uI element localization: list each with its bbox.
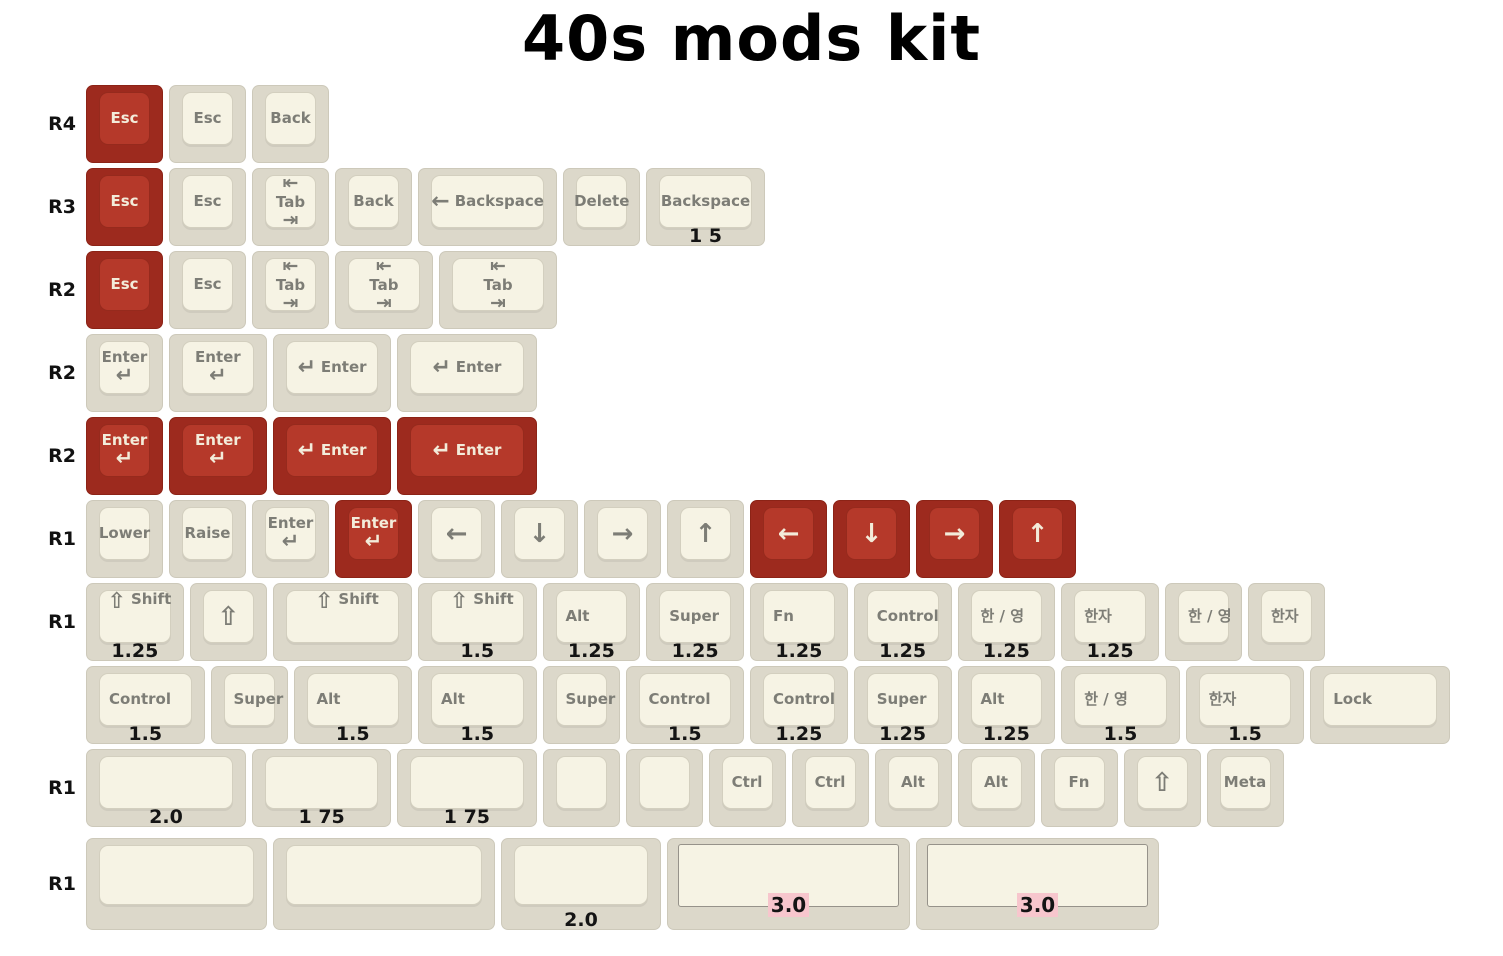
keycap-han-yeong: 한 / 영1.5 — [1061, 666, 1180, 744]
keycap-enter-red: Enter↵ — [335, 500, 412, 578]
keycap-top: Enter↵ — [348, 507, 399, 560]
return-arrow-icon: ↵ — [209, 448, 227, 469]
up-arrow-icon: ↑ — [695, 521, 717, 547]
keycap-top — [99, 845, 254, 905]
keycap-top: Lock — [1323, 673, 1436, 726]
down-arrow-icon: ↓ — [861, 521, 883, 547]
keycap-enter-red: ↵Enter — [397, 417, 536, 495]
keycap-alt: Alt — [875, 749, 952, 827]
keycap-super: Super — [543, 666, 620, 744]
keycap-top: ⇤Tab⇥ — [452, 258, 545, 311]
size-label: 2.0 — [502, 911, 660, 930]
keycap-super: Super1.25 — [854, 666, 952, 744]
keycap-blank: 1 75 — [252, 749, 391, 827]
keycap-top: ↵Enter — [410, 424, 523, 477]
keycap-top: Back — [348, 175, 399, 228]
keycap-top: 한 / 영 — [1178, 590, 1229, 643]
keycap-hanja: 한자 — [1248, 583, 1325, 661]
row-label: R1 — [28, 749, 76, 827]
shift-arrow-icon: ⇧ — [1151, 770, 1173, 796]
keycap-super: Super1.25 — [646, 583, 744, 661]
tab-backward-icon: ⇤ — [283, 174, 299, 192]
keycap-hanja: 한자1.5 — [1186, 666, 1305, 744]
keycap-control: Control1.5 — [626, 666, 745, 744]
keycap-top: ←Backspace — [431, 175, 544, 228]
size-label: 3.0 — [668, 895, 909, 915]
keycap-arrow-up-red: ↑ — [999, 500, 1076, 578]
size-label: 1.5 — [627, 725, 744, 744]
down-arrow-icon: ↓ — [529, 521, 551, 547]
keycap-top: Super — [224, 673, 275, 726]
right-arrow-icon: → — [612, 521, 634, 547]
keycap-fn: Fn1.25 — [750, 583, 848, 661]
keycap-top: Alt — [971, 756, 1022, 809]
keycap-blank: 2.0 — [501, 838, 661, 930]
keycap-alt: Alt1.5 — [418, 666, 537, 744]
keycap-super: Super — [211, 666, 288, 744]
keycap-top: Backspace — [659, 175, 752, 228]
keycap-top: ↵Enter — [410, 341, 523, 394]
keycap-han-yeong: 한 / 영 — [1165, 583, 1242, 661]
size-label: 3.0 — [917, 895, 1158, 915]
keycap-top: Ctrl — [722, 756, 773, 809]
return-arrow-icon: ↵ — [297, 357, 315, 379]
keycap-esc-red: Esc — [86, 251, 163, 329]
size-label: 1.5 — [295, 725, 412, 744]
tab-backward-icon: ⇤ — [490, 257, 506, 275]
keycap-top: Esc — [182, 175, 233, 228]
keycap-top: Ctrl — [805, 756, 856, 809]
size-label: 1.25 — [751, 725, 847, 744]
keycap-top — [410, 756, 523, 809]
keycap-top: → — [597, 507, 648, 560]
keycap-top: ⇧Shift — [99, 590, 171, 643]
tab-forward-icon: ⇥ — [283, 294, 299, 312]
shift-arrow-icon: ⇧ — [217, 604, 239, 630]
keycap-shift-icon: ⇧ — [190, 583, 267, 661]
size-label: 1.25 — [751, 642, 847, 661]
keycap-top: ⇤Tab⇥ — [265, 175, 316, 228]
row-label: R3 — [28, 168, 76, 246]
keycap-top: ⇧Shift — [286, 590, 399, 643]
row-label: R2 — [28, 334, 76, 412]
up-arrow-icon: ↑ — [1027, 521, 1049, 547]
keycap-shift: ⇧Shift — [273, 583, 412, 661]
keycap-top: Esc — [182, 258, 233, 311]
keycap-kit-diagram: R4EscEscBackR3EscEsc⇤Tab⇥Back←BackspaceD… — [0, 0, 1503, 956]
keycap-alt: Alt1.25 — [543, 583, 641, 661]
keycap-spacebar: 3.0 — [916, 838, 1159, 930]
right-arrow-icon: → — [944, 521, 966, 547]
keycap-top: Alt — [888, 756, 939, 809]
shift-arrow-icon: ⇧ — [315, 591, 333, 613]
keycap-enter: Enter↵ — [86, 334, 163, 412]
row-label: R4 — [28, 85, 76, 163]
keycap-top: ⇧ — [1137, 756, 1188, 809]
tab-backward-icon: ⇤ — [283, 257, 299, 275]
keycap-top: Alt — [971, 673, 1043, 726]
keycap-backspace: Backspace1 5 — [646, 168, 765, 246]
keycap-top: Alt — [431, 673, 524, 726]
size-label: 1.25 — [959, 642, 1055, 661]
keycap-tab: ⇤Tab⇥ — [252, 168, 329, 246]
keycap-blank — [626, 749, 703, 827]
keycap-hanja: 한자1.25 — [1061, 583, 1159, 661]
keycap-top: ↓ — [514, 507, 565, 560]
row-label: R2 — [28, 251, 76, 329]
keycap-blank — [86, 838, 267, 930]
keycap-top: Esc — [99, 92, 150, 145]
size-label: 1.25 — [855, 642, 951, 661]
keycap-top: Enter↵ — [265, 507, 316, 560]
row-label: R2 — [28, 417, 76, 495]
keycap-top: Fn — [763, 590, 835, 643]
keycap-top: Esc — [182, 92, 233, 145]
size-label: 1.25 — [544, 642, 640, 661]
keycap-top — [99, 756, 233, 809]
keycap-top: Lower — [99, 507, 150, 560]
size-label: 1.25 — [959, 725, 1055, 744]
size-label: 1.25 — [87, 642, 183, 661]
keycap-enter-red: Enter↵ — [86, 417, 163, 495]
keycap-fn: Fn — [1041, 749, 1118, 827]
keycap-top: ⇤Tab⇥ — [348, 258, 420, 311]
keycap-top: 한자 — [1074, 590, 1146, 643]
keycap-enter: Enter↵ — [252, 500, 329, 578]
keycap-control: Control1.5 — [86, 666, 205, 744]
row-label: R1 — [28, 838, 76, 930]
tab-forward-icon: ⇥ — [376, 294, 392, 312]
keycap-top: ← — [431, 507, 482, 560]
size-label: 1.5 — [1062, 725, 1179, 744]
keycap-top: Esc — [99, 258, 150, 311]
size-label: 1.5 — [419, 725, 536, 744]
keycap-arrow-up: ↑ — [667, 500, 744, 578]
size-label: 1 75 — [253, 808, 390, 827]
keycap-top: ↑ — [1012, 507, 1063, 560]
keycap-delete: Delete — [563, 168, 640, 246]
return-arrow-icon: ↵ — [432, 440, 450, 462]
keycap-alt: Alt1.5 — [294, 666, 413, 744]
keycap-alt: Alt — [958, 749, 1035, 827]
left-arrow-icon: ← — [778, 521, 800, 547]
keycap-top: Esc — [99, 175, 150, 228]
keycap-tab: ⇤Tab⇥ — [439, 251, 558, 329]
keycap-top: Alt — [307, 673, 400, 726]
keycap-lock: Lock — [1310, 666, 1449, 744]
keycap-top: Super — [867, 673, 939, 726]
keycap-esc-red: Esc — [86, 85, 163, 163]
return-arrow-icon: ↵ — [116, 448, 134, 469]
keycap-raise: Raise — [169, 500, 246, 578]
keycap-blank: 2.0 — [86, 749, 246, 827]
keycap-top: Fn — [1054, 756, 1105, 809]
keycap-shift-icon: ⇧ — [1124, 749, 1201, 827]
tab-forward-icon: ⇥ — [490, 294, 506, 312]
keycap-top: Enter↵ — [182, 424, 254, 477]
keycap-top: ⇧Shift — [431, 590, 524, 643]
keycap-enter-red: ↵Enter — [273, 417, 392, 495]
keycap-top — [514, 845, 648, 905]
keycap-esc: Esc — [169, 85, 246, 163]
return-arrow-icon: ↵ — [365, 531, 383, 552]
keycap-top — [286, 845, 482, 905]
keycap-top: ↓ — [846, 507, 897, 560]
tab-forward-icon: ⇥ — [283, 211, 299, 229]
keycap-top: 한자 — [1261, 590, 1312, 643]
keycap-arrow-left: ← — [418, 500, 495, 578]
keycap-top: Enter↵ — [99, 341, 150, 394]
keycap-top: Control — [867, 590, 939, 643]
keycap-top: Back — [265, 92, 316, 145]
keycap-alt: Alt1.25 — [958, 666, 1056, 744]
keycap-top: ← — [763, 507, 814, 560]
keycap-top: ↵Enter — [286, 341, 379, 394]
keycap-shift: ⇧Shift1.25 — [86, 583, 184, 661]
keycap-blank — [273, 838, 495, 930]
keycap-tab: ⇤Tab⇥ — [252, 251, 329, 329]
size-label: 2.0 — [87, 808, 245, 827]
keycap-ctrl: Ctrl — [792, 749, 869, 827]
size-label: 1 5 — [647, 227, 764, 246]
keycap-top: ↑ — [680, 507, 731, 560]
keycap-arrow-right-red: → — [916, 500, 993, 578]
return-arrow-icon: ↵ — [432, 357, 450, 379]
keycap-ctrl: Ctrl — [709, 749, 786, 827]
size-label: 1.25 — [647, 642, 743, 661]
keycap-top: → — [929, 507, 980, 560]
backspace-arrow-icon: ← — [431, 191, 449, 213]
keycap-top: Delete — [576, 175, 627, 228]
keycap-spacebar: 3.0 — [667, 838, 910, 930]
row-label: R1 — [28, 500, 76, 578]
keycap-backspace-arrow: ←Backspace — [418, 168, 557, 246]
keycap-esc: Esc — [169, 251, 246, 329]
size-label: 1 75 — [398, 808, 535, 827]
shift-arrow-icon: ⇧ — [108, 591, 126, 613]
keycap-top: Control — [99, 673, 192, 726]
keycap-blank: 1 75 — [397, 749, 536, 827]
keycap-control: Control1.25 — [750, 666, 848, 744]
keycap-enter: ↵Enter — [397, 334, 536, 412]
keycap-esc-red: Esc — [86, 168, 163, 246]
keycap-top: 한자 — [1199, 673, 1292, 726]
return-arrow-icon: ↵ — [116, 365, 134, 386]
keycap-enter: Enter↵ — [169, 334, 267, 412]
keycap-top: ⇧ — [203, 590, 254, 643]
size-label: 1.5 — [1187, 725, 1304, 744]
keycap-top: 한 / 영 — [971, 590, 1043, 643]
keycap-top: ↵Enter — [286, 424, 379, 477]
keycap-top: Super — [659, 590, 731, 643]
size-label: 1.5 — [419, 642, 536, 661]
keycap-esc: Esc — [169, 168, 246, 246]
keycap-top: Super — [556, 673, 607, 726]
keycap-top: Enter↵ — [99, 424, 150, 477]
keycap-top: Raise — [182, 507, 233, 560]
keycap-tab: ⇤Tab⇥ — [335, 251, 433, 329]
keycap-enter: ↵Enter — [273, 334, 392, 412]
keycap-top: Control — [639, 673, 732, 726]
shift-arrow-icon: ⇧ — [450, 591, 468, 613]
keycap-shift: ⇧Shift1.5 — [418, 583, 537, 661]
row-label: R1 — [28, 583, 76, 661]
keycap-arrow-down: ↓ — [501, 500, 578, 578]
keycap-top: ⇤Tab⇥ — [265, 258, 316, 311]
size-label: 1.25 — [855, 725, 951, 744]
keycap-back: Back — [335, 168, 412, 246]
tab-backward-icon: ⇤ — [376, 257, 392, 275]
keycap-lower: Lower — [86, 500, 163, 578]
size-label: 1.5 — [87, 725, 204, 744]
keycap-top: Alt — [556, 590, 628, 643]
keycap-meta: Meta — [1207, 749, 1284, 827]
keycap-arrow-right: → — [584, 500, 661, 578]
keycap-top: Control — [763, 673, 835, 726]
keycap-top — [639, 756, 690, 809]
left-arrow-icon: ← — [446, 521, 468, 547]
keycap-top: Meta — [1220, 756, 1271, 809]
keycap-control: Control1.25 — [854, 583, 952, 661]
keycap-han-yeong: 한 / 영1.25 — [958, 583, 1056, 661]
return-arrow-icon: ↵ — [297, 440, 315, 462]
size-label: 1.25 — [1062, 642, 1158, 661]
keycap-top — [556, 756, 607, 809]
keycap-top: Enter↵ — [182, 341, 254, 394]
keycap-blank — [543, 749, 620, 827]
keycap-top — [265, 756, 378, 809]
keycap-arrow-down-red: ↓ — [833, 500, 910, 578]
keycap-top: 한 / 영 — [1074, 673, 1167, 726]
keycap-back: Back — [252, 85, 329, 163]
return-arrow-icon: ↵ — [282, 531, 300, 552]
keycap-arrow-left-red: ← — [750, 500, 827, 578]
return-arrow-icon: ↵ — [209, 365, 227, 386]
keycap-enter-red: Enter↵ — [169, 417, 267, 495]
